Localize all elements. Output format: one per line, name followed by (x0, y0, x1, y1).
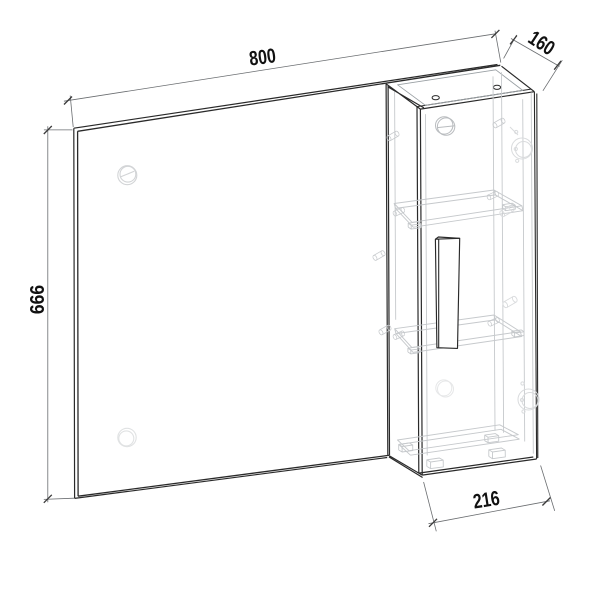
svg-text:800: 800 (248, 43, 278, 70)
svg-text:666: 666 (27, 285, 49, 314)
svg-text:216: 216 (471, 486, 501, 513)
svg-text:160: 160 (524, 26, 559, 60)
